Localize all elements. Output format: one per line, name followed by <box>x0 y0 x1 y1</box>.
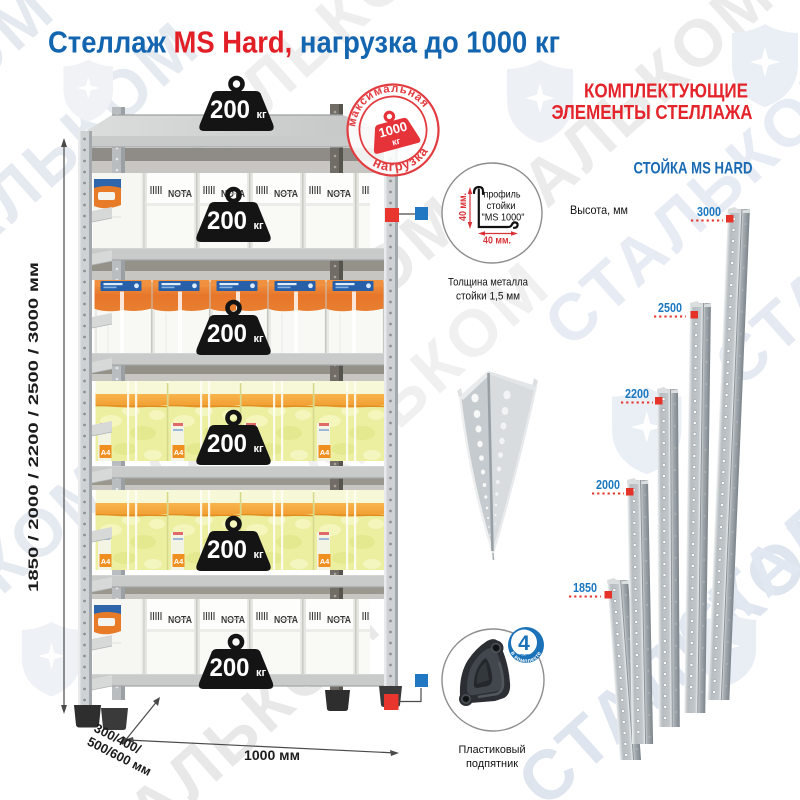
svg-text:Стеллаж MS Hard, нагрузка до 1: Стеллаж MS Hard, нагрузка до 1000 кг <box>48 25 560 60</box>
svg-text:200: 200 <box>207 536 247 564</box>
svg-text:200: 200 <box>207 430 247 458</box>
svg-text:кг: кг <box>253 549 264 561</box>
svg-text:40 мм.: 40 мм. <box>483 236 511 247</box>
svg-text:Высота, мм: Высота, мм <box>570 203 628 217</box>
svg-text:"MS 1000": "MS 1000" <box>482 213 525 224</box>
svg-text:200: 200 <box>207 320 247 348</box>
svg-text:стойки 1,5 мм: стойки 1,5 мм <box>456 291 520 303</box>
svg-text:1000 мм: 1000 мм <box>244 748 300 763</box>
svg-text:подпятник: подпятник <box>466 758 518 770</box>
svg-text:200: 200 <box>210 654 250 682</box>
svg-text:Пластиковый: Пластиковый <box>459 744 526 756</box>
svg-text:2200: 2200 <box>625 387 649 401</box>
svg-text:40 мм.: 40 мм. <box>458 193 469 221</box>
svg-text:3000: 3000 <box>697 205 721 219</box>
svg-text:1850: 1850 <box>573 581 597 595</box>
svg-text:2500: 2500 <box>658 301 682 315</box>
svg-text:кг: кг <box>253 220 264 232</box>
svg-text:ЭЛЕМЕНТЫ СТЕЛЛАЖА: ЭЛЕМЕНТЫ СТЕЛЛАЖА <box>552 102 753 124</box>
svg-text:стойки: стойки <box>487 201 516 212</box>
svg-text:кг: кг <box>256 109 267 121</box>
svg-text:кг: кг <box>253 333 264 345</box>
svg-text:200: 200 <box>207 207 247 235</box>
svg-text:СТОЙКА MS HARD: СТОЙКА MS HARD <box>634 159 753 178</box>
svg-text:кг: кг <box>253 443 264 455</box>
svg-text:кг: кг <box>256 667 267 679</box>
svg-text:КОМПЛЕКТУЮЩИЕ: КОМПЛЕКТУЮЩИЕ <box>584 81 748 103</box>
svg-text:Толщина металла: Толщина металла <box>448 277 529 289</box>
svg-text:200: 200 <box>210 96 250 124</box>
svg-text:профиль: профиль <box>484 189 521 201</box>
svg-text:2000: 2000 <box>596 478 620 492</box>
svg-text:1850 / 2000 / 2200 / 2500 / 30: 1850 / 2000 / 2200 / 2500 / 3000 мм <box>25 262 41 592</box>
